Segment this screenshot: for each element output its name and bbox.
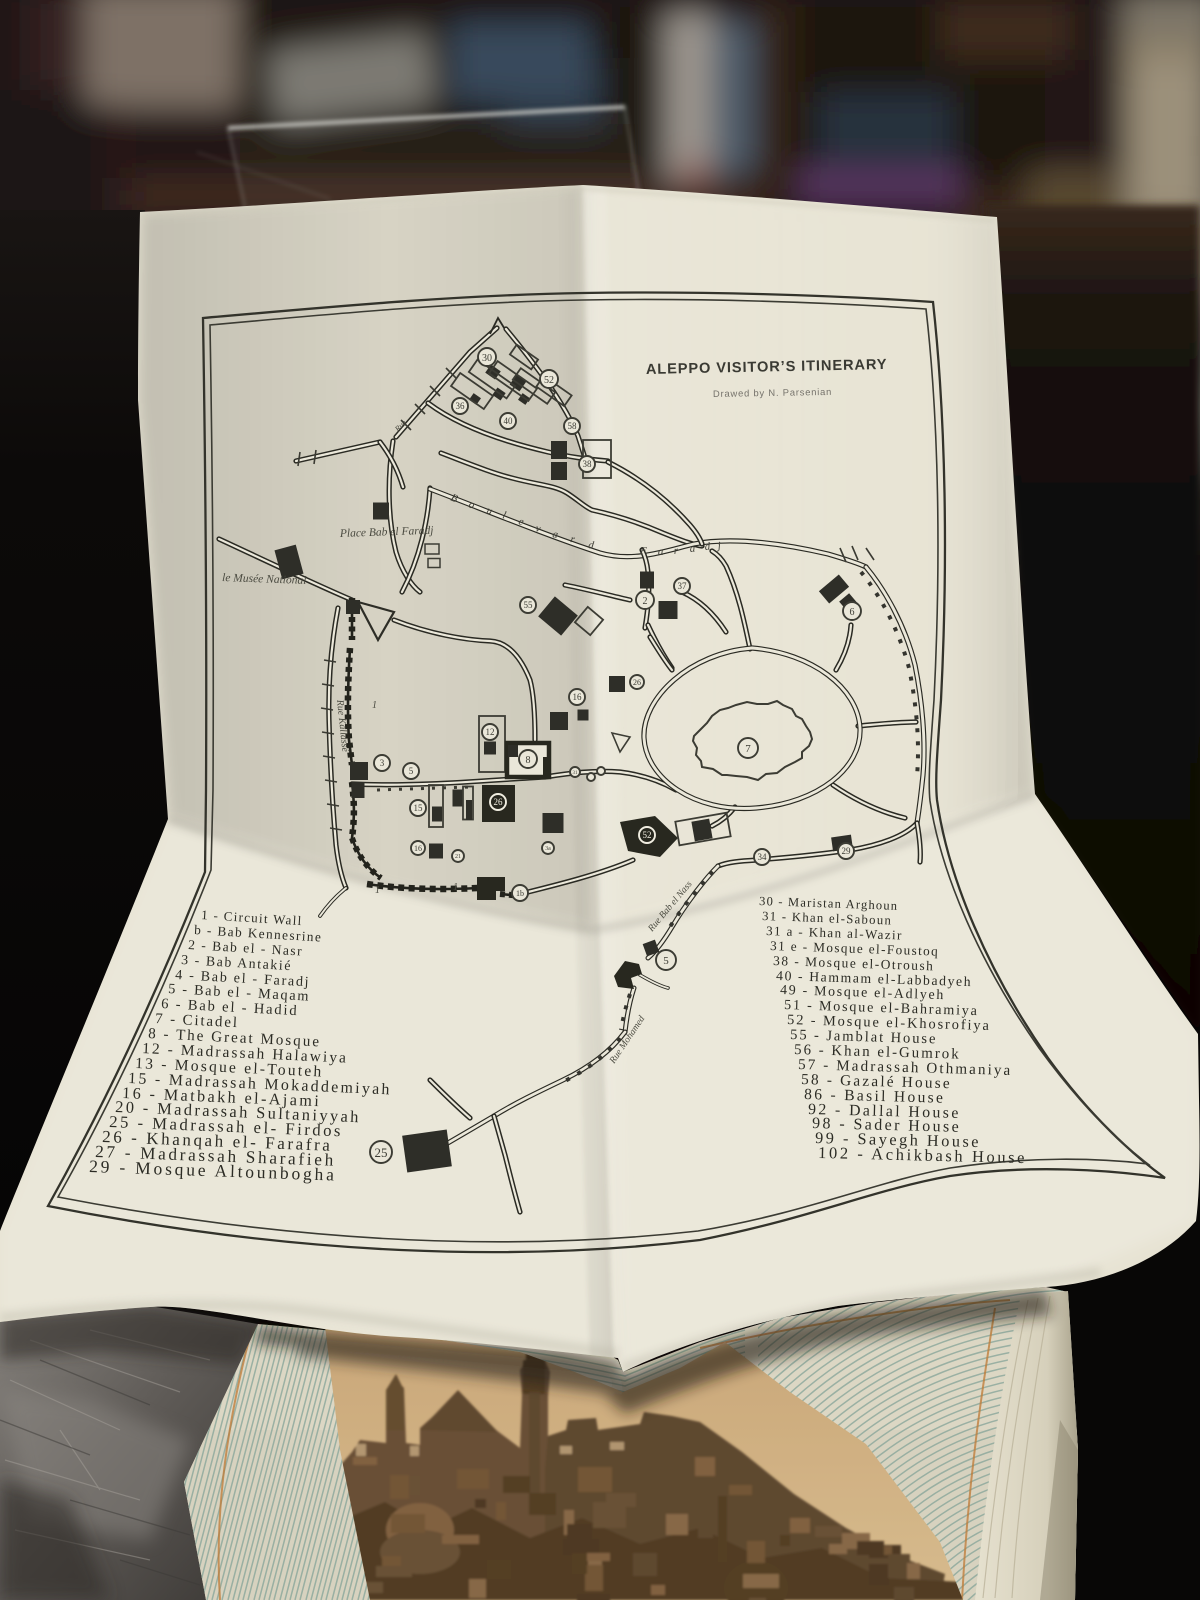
svg-text:1b: 1b	[516, 889, 524, 898]
svg-text:15: 15	[414, 803, 424, 813]
svg-text:5: 5	[409, 766, 414, 776]
svg-text:26: 26	[494, 797, 504, 807]
svg-text:40: 40	[504, 416, 514, 426]
svg-text:55: 55	[524, 600, 534, 610]
svg-text:30: 30	[482, 353, 492, 364]
svg-text:7: 7	[745, 743, 751, 755]
svg-text:1: 1	[453, 882, 458, 893]
svg-text:3: 3	[380, 758, 385, 768]
svg-text:5: 5	[663, 955, 669, 967]
svg-text:31: 31	[573, 771, 579, 776]
svg-text:26: 26	[633, 678, 641, 687]
svg-text:52: 52	[643, 830, 652, 840]
svg-text:6: 6	[850, 607, 855, 618]
svg-text:16: 16	[414, 844, 422, 853]
svg-text:Drawed by N. Parsenian: Drawed by N. Parsenian	[713, 386, 832, 399]
svg-text:34: 34	[758, 852, 768, 862]
svg-text:1: 1	[375, 885, 380, 896]
svg-text:8: 8	[526, 755, 531, 766]
svg-text:2: 2	[643, 596, 648, 607]
svg-text:25: 25	[375, 1145, 388, 1160]
svg-text:58: 58	[568, 421, 578, 431]
svg-text:37: 37	[678, 581, 688, 591]
svg-text:16: 16	[573, 692, 583, 702]
svg-text:38: 38	[583, 459, 593, 469]
svg-text:F: F	[639, 545, 647, 557]
svg-text:21: 21	[455, 854, 461, 860]
svg-text:1: 1	[372, 700, 377, 711]
svg-text:29: 29	[842, 846, 852, 856]
svg-text:12: 12	[486, 727, 495, 737]
svg-text:36: 36	[456, 401, 466, 411]
svg-text:a: a	[658, 546, 664, 558]
svg-text:52: 52	[544, 375, 554, 386]
svg-text:3a: 3a	[545, 846, 551, 852]
svg-text:a: a	[689, 543, 695, 555]
